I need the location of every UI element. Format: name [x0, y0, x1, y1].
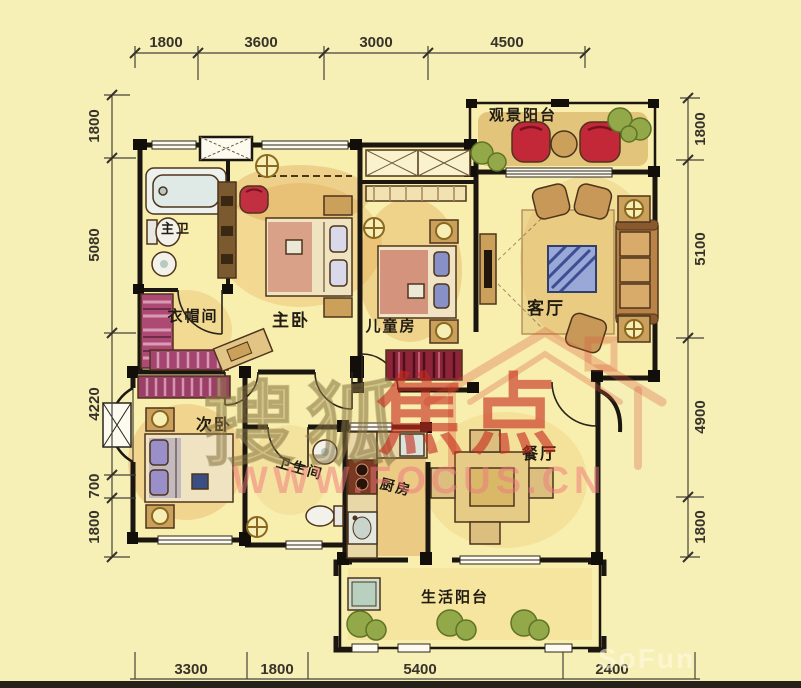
dim-left-3: 700 — [86, 473, 103, 498]
dim-left-0: 1800 — [86, 109, 103, 142]
armchair-master-red — [240, 186, 268, 213]
dim-left-2: 4220 — [86, 387, 103, 420]
window-master-bath — [152, 141, 196, 149]
dim-left-4: 1800 — [86, 510, 103, 543]
bed-kids — [378, 246, 456, 318]
light-fixture-icon-kids — [364, 218, 384, 238]
dim-top-2: 3000 — [359, 34, 392, 51]
window-balcony-slider — [506, 168, 612, 177]
shaft-box — [200, 137, 252, 160]
toilet-bathroom — [306, 506, 343, 526]
room-label-master-bedroom: 主卧 — [272, 310, 310, 330]
sofa-living — [616, 220, 658, 324]
watermark-logo: 焦点 — [376, 366, 564, 465]
room-label-living-room: 客厅 — [526, 298, 565, 318]
floorplan-canvas: 主卫 衣帽间 主卧 儿童房 观景阳台 客厅 次卧 卫生间 厨房 餐厅 生活阳台 … — [0, 0, 801, 688]
room-label-cloakroom: 衣帽间 — [167, 307, 218, 325]
room-label-service-balcony: 生活阳台 — [421, 588, 489, 606]
dim-right-3: 1800 — [692, 510, 709, 543]
room-label-kids-room: 儿童房 — [364, 317, 416, 335]
floorplan-screenshot: 主卫 衣帽间 主卧 儿童房 观景阳台 客厅 次卧 卫生间 厨房 餐厅 生活阳台 … — [0, 0, 801, 688]
nightstand-master-bottom — [324, 298, 352, 317]
washer — [348, 578, 380, 610]
lamp-second-bottom — [152, 508, 168, 524]
lamp-living-top — [625, 200, 643, 218]
window-bathroom — [286, 541, 322, 549]
light-fixture-icon-bath — [247, 517, 267, 537]
dim-bottom-1: 1800 — [260, 661, 293, 678]
room-label-master-bath: 主卫 — [161, 221, 191, 236]
lamp-living-bottom — [625, 320, 643, 338]
bathtub — [146, 168, 226, 214]
tv-cabinet — [480, 234, 496, 304]
window-master-bedroom — [262, 141, 348, 149]
dim-bottom-2: 5400 — [403, 661, 436, 678]
room-label-view-balcony: 观景阳台 — [489, 106, 557, 124]
dim-bottom-0: 3300 — [174, 661, 207, 678]
watermark-ghost: SoFun — [598, 643, 695, 674]
dimension-chain-top: 1800 3600 3000 4500 — [130, 34, 590, 80]
sink-master — [152, 252, 176, 276]
nightstand-master-top — [324, 196, 352, 215]
light-fixture-icon-master — [256, 155, 278, 177]
entry-closet — [366, 150, 470, 176]
dim-top-1: 3600 — [244, 34, 277, 51]
dimension-chain-right: 1800 5100 4900 1800 — [676, 93, 709, 562]
dim-right-1: 5100 — [692, 232, 709, 265]
dim-right-2: 4900 — [692, 400, 709, 433]
window-dining-south — [460, 556, 540, 564]
watermark-url: WWW.FOCUS.CN — [232, 460, 607, 502]
sink-kitchen — [348, 512, 377, 544]
coffee-table — [548, 246, 596, 292]
bed-master — [266, 218, 352, 296]
wardrobe-kids-top — [366, 186, 466, 201]
balcony-table — [551, 131, 577, 157]
lamp-kids-bottom — [436, 323, 452, 339]
dim-top-3: 4500 — [490, 34, 523, 51]
lamp-kids-top — [436, 223, 452, 239]
dim-right-0: 1800 — [692, 112, 709, 145]
window-second-bedroom — [158, 536, 232, 544]
dim-top-0: 1800 — [149, 34, 182, 51]
lamp-second-top — [152, 411, 168, 427]
bottom-bar — [0, 681, 801, 688]
dim-left-1: 5080 — [86, 228, 103, 261]
dimension-chain-left: 1800 5080 4220 700 1800 — [86, 90, 136, 562]
cabinet-master — [218, 182, 236, 278]
bay-window-box — [103, 403, 131, 447]
